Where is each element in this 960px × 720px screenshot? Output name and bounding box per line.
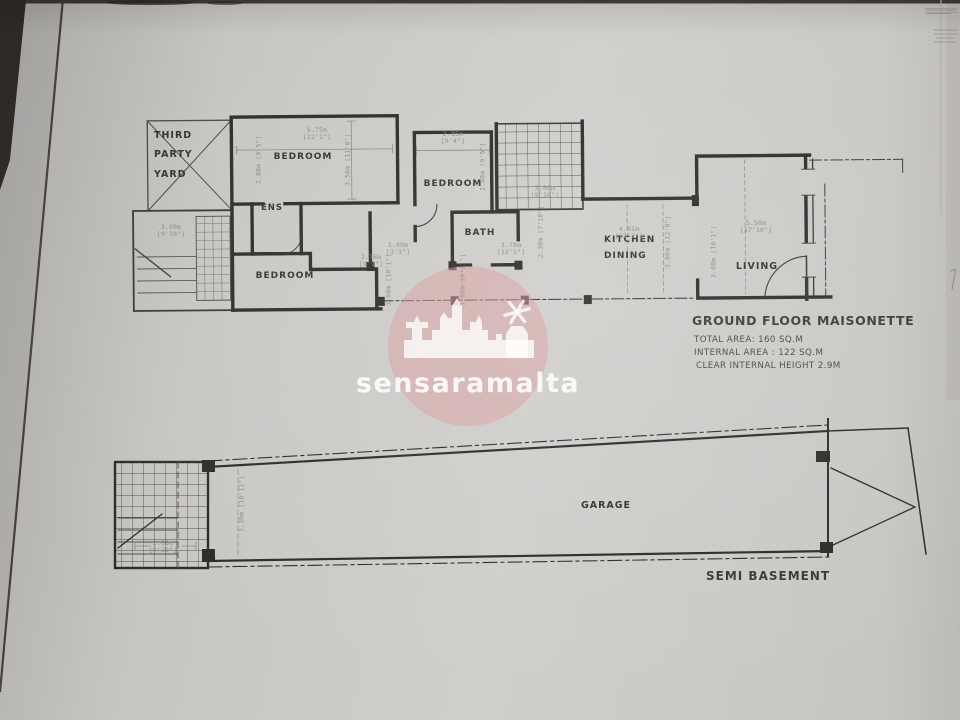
room-label-garage: GARAGE bbox=[566, 500, 646, 512]
room-label-bath: BATH bbox=[455, 228, 505, 239]
ground-floor-plan bbox=[132, 111, 904, 311]
garage-piers bbox=[202, 451, 833, 562]
stat-total-area: TOTAL AREA: 160 SQ.M bbox=[694, 335, 803, 345]
floorplan-drawing: sensaramalta bbox=[0, 0, 960, 720]
room-label-third-party-yard: THIRD PARTY YARD bbox=[154, 126, 224, 184]
room-label-bedroom-bottom: BEDROOM bbox=[250, 271, 320, 282]
dim-bedroom-mid-width: 2.85m [9'4"] bbox=[430, 131, 476, 146]
dim-garage-depth: 3.30m [10'11"] bbox=[238, 468, 245, 540]
dim-bedroom-bottom-depth: 3.08m [10'1"] bbox=[385, 249, 392, 311]
living-facade bbox=[802, 159, 816, 295]
dim-terrace-depth: 3.02m [9'11"] bbox=[459, 249, 466, 311]
stat-internal-height: CLEAR INTERNAL HEIGHT 2.9M bbox=[696, 361, 841, 371]
dim-living-width: 5.50m [17'10"] bbox=[731, 220, 781, 235]
faint-corner-text bbox=[925, 8, 957, 16]
dim-bedroom-top-depth: 3.56m [11'8"] bbox=[344, 128, 351, 192]
dim-bedroom-top-left: 2.88m [9'5"] bbox=[255, 130, 262, 190]
dim-bath-side: 2.38m [7'10"] bbox=[537, 201, 544, 263]
garage-ramp bbox=[828, 419, 926, 556]
room-label-bedroom-top: BEDROOM bbox=[268, 152, 338, 163]
dim-kitchen-width: 4.01m [13'2"] bbox=[606, 226, 652, 241]
dim-left-block: 3.00m [9'10"] bbox=[148, 224, 194, 239]
dim-living-depth: 3.08m [10'1"] bbox=[710, 221, 717, 283]
garage-walls bbox=[208, 425, 830, 567]
floor-plan-photo: sensaramalta THIRD PARTY YARD BEDROOM EN… bbox=[0, 0, 960, 720]
semi-basement-title: SEMI BASEMENT bbox=[706, 569, 830, 583]
dim-kitchen-depth: 3.66m [12'0"] bbox=[664, 211, 671, 273]
stat-internal-area: INTERNAL AREA : 122 SQ.M bbox=[694, 348, 823, 358]
ground-floor-title: GROUND FLOOR MAISONETTE bbox=[692, 313, 914, 328]
dim-bedroom-top-width: 6.75m [22'1"] bbox=[294, 127, 340, 142]
door-arcs bbox=[283, 201, 807, 303]
dim-bedroom-mid-depth: 2.88m [9'5"] bbox=[479, 137, 486, 197]
room-label-ens: ENS bbox=[261, 203, 283, 214]
room-label-living: LIVING bbox=[725, 261, 789, 273]
dim-bath-width: 3.78m [12'5"] bbox=[488, 242, 534, 257]
dim-basement-stair-width: 3.00m [9'10"] bbox=[140, 540, 186, 555]
watermark-brand: sensaramalta bbox=[356, 368, 580, 399]
dim-stairwell: 3.00m [9'10"] bbox=[522, 185, 568, 200]
